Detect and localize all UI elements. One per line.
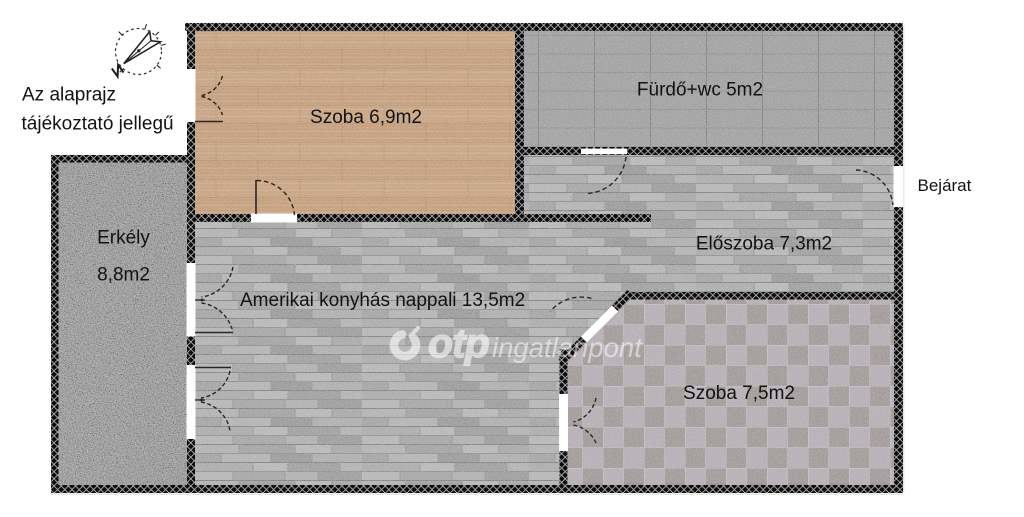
svg-text:Bejárat: Bejárat bbox=[918, 176, 972, 195]
svg-text:ingatlanpont: ingatlanpont bbox=[492, 332, 643, 363]
svg-text:Erkély: Erkély bbox=[97, 227, 150, 248]
svg-text:Az alaprajz: Az alaprajz bbox=[22, 85, 116, 106]
svg-text:8,8m2: 8,8m2 bbox=[97, 264, 150, 285]
svg-text:Amerikai konyhás nappali 13,5m: Amerikai konyhás nappali 13,5m2 bbox=[240, 290, 525, 311]
svg-text:Szoba 6,9m2: Szoba 6,9m2 bbox=[310, 107, 422, 128]
svg-text:Szoba 7,5m2: Szoba 7,5m2 bbox=[683, 383, 795, 404]
svg-text:tájékoztató jellegű: tájékoztató jellegű bbox=[22, 114, 174, 135]
svg-text:Előszoba 7,3m2: Előszoba 7,3m2 bbox=[696, 234, 832, 255]
svg-text:Fürdő+wc 5m2: Fürdő+wc 5m2 bbox=[637, 80, 763, 101]
svg-text:otp: otp bbox=[428, 320, 489, 366]
